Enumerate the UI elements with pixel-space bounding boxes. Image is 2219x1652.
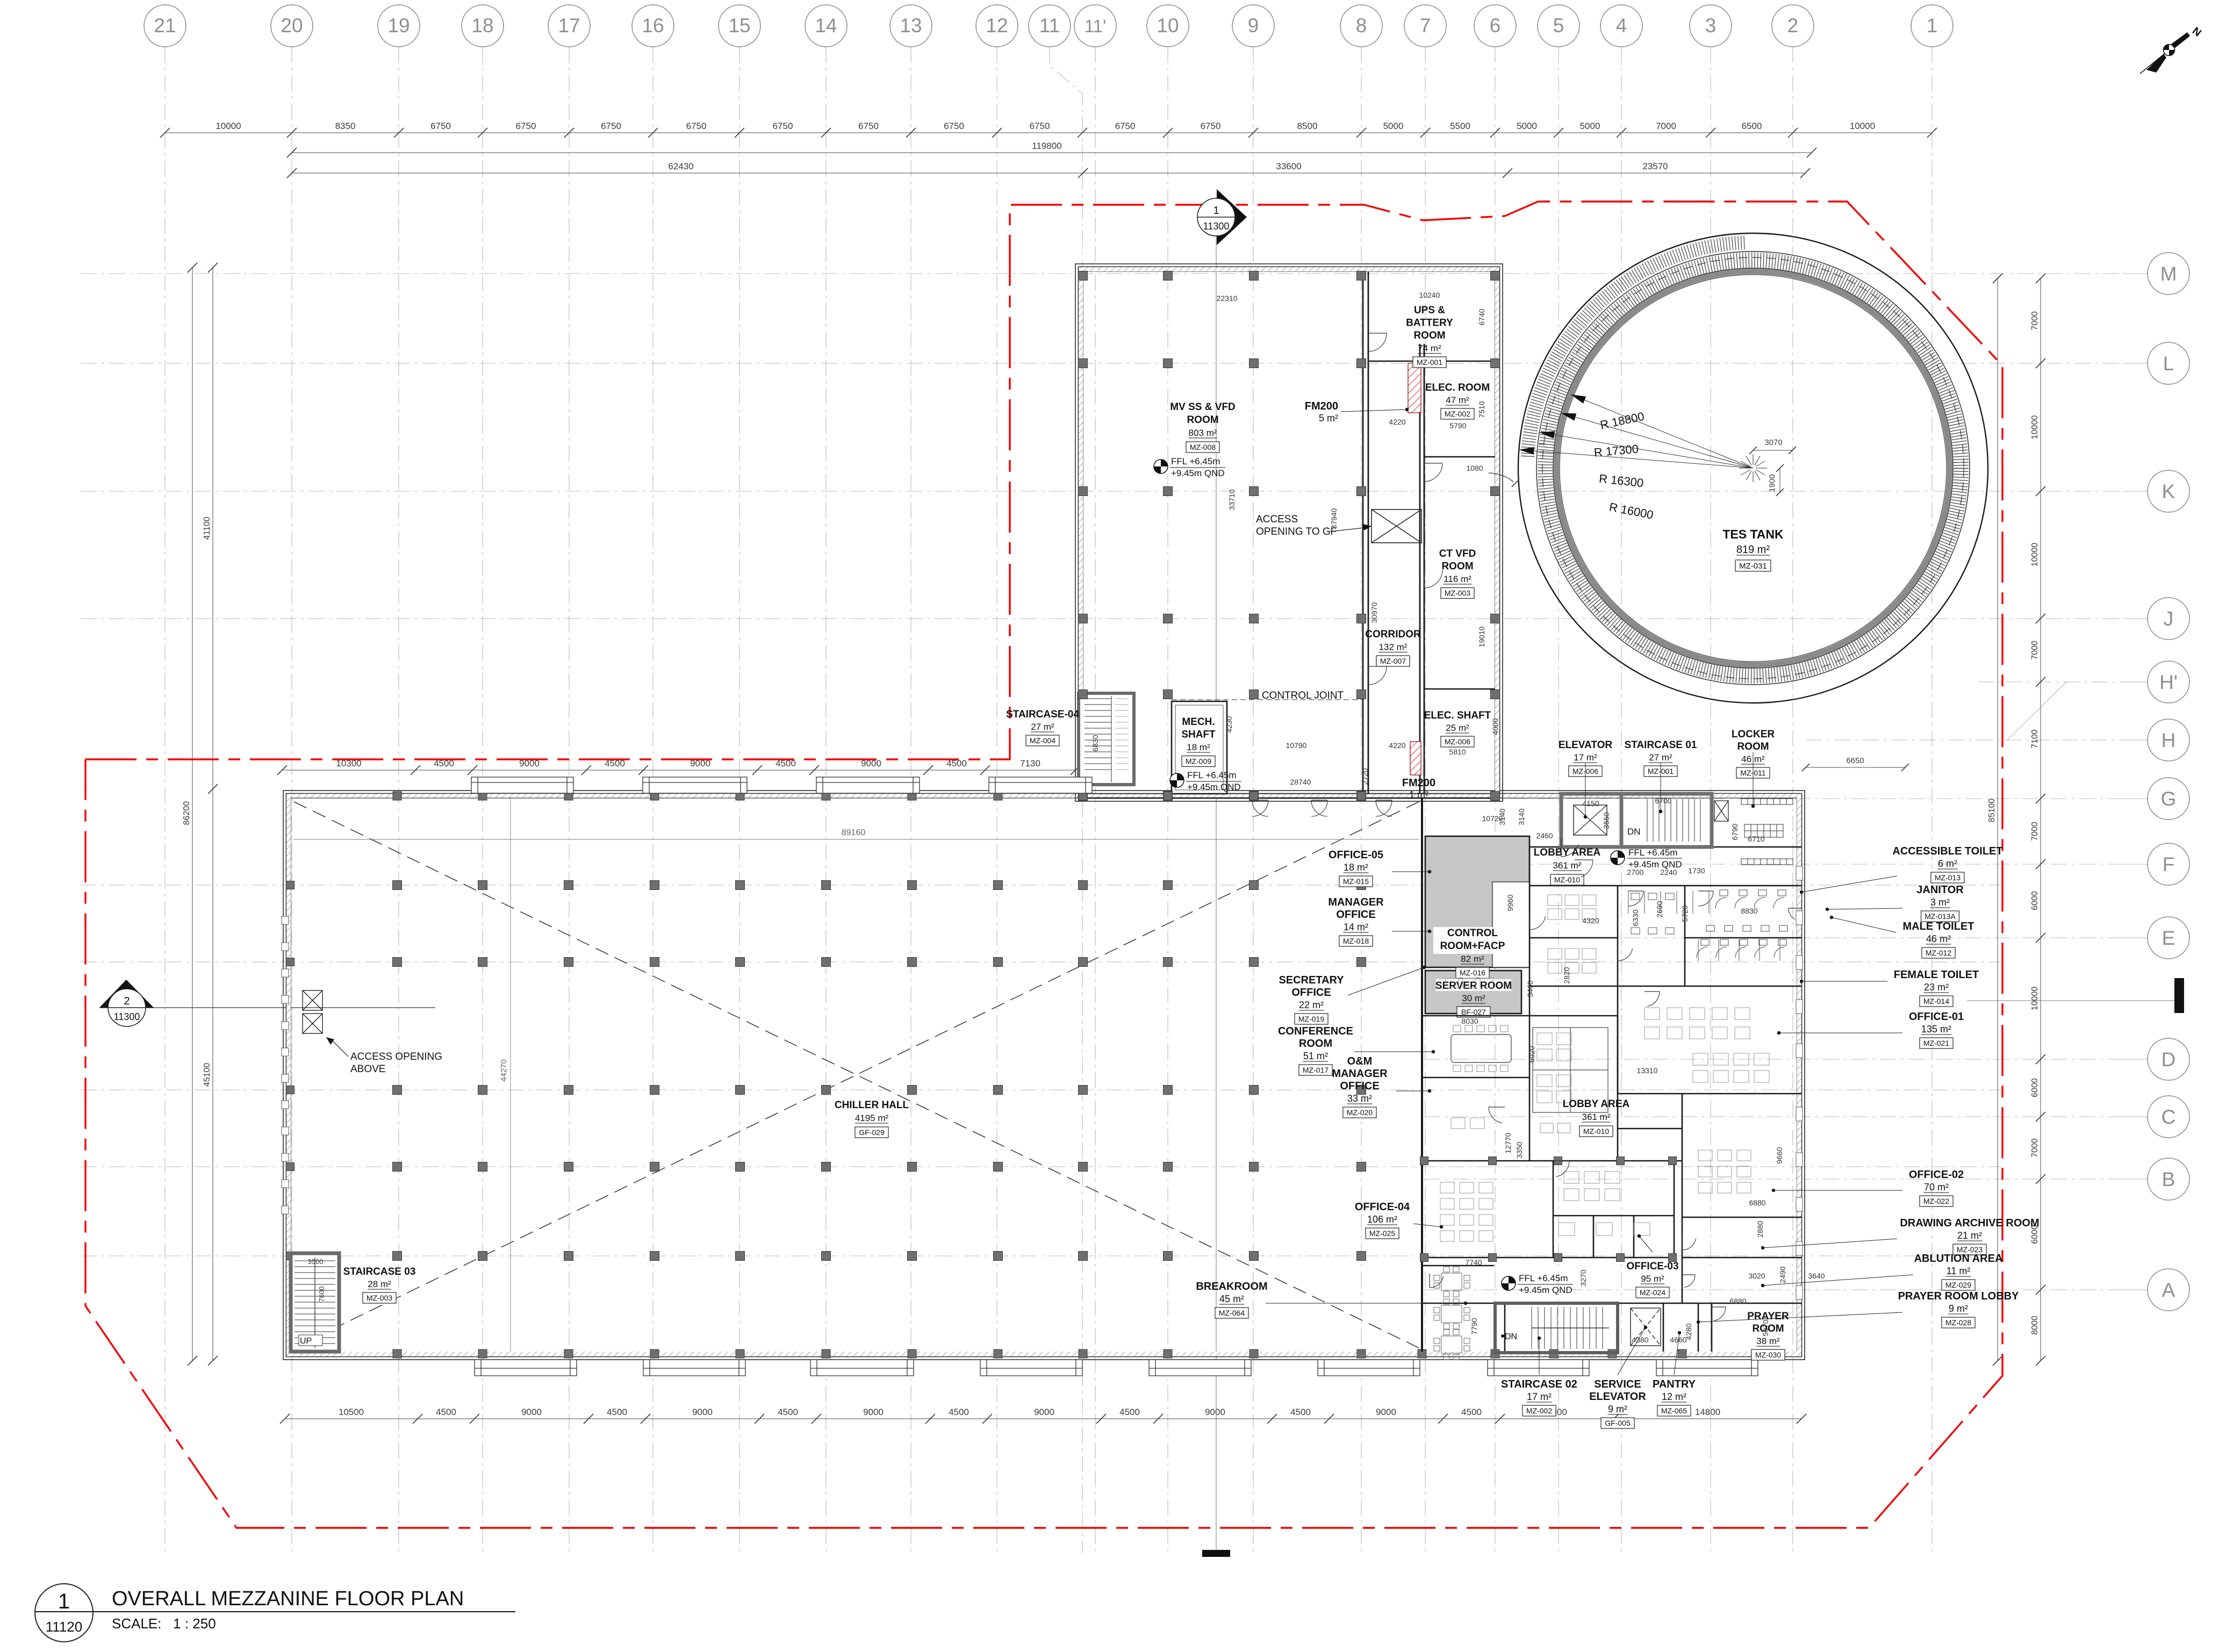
svg-text:FM200: FM200 bbox=[1305, 400, 1338, 412]
svg-text:OFFICE: OFFICE bbox=[1291, 987, 1331, 999]
svg-text:47 m²: 47 m² bbox=[1446, 395, 1469, 405]
svg-text:FFL +6.45m: FFL +6.45m bbox=[1171, 456, 1220, 466]
svg-text:16: 16 bbox=[642, 15, 664, 37]
svg-text:27 m²: 27 m² bbox=[1031, 722, 1054, 732]
svg-text:10790: 10790 bbox=[1286, 741, 1307, 750]
svg-text:9000: 9000 bbox=[692, 1407, 713, 1417]
svg-text:MZ-001: MZ-001 bbox=[1417, 358, 1442, 367]
svg-text:H: H bbox=[2161, 729, 2176, 751]
svg-text:J: J bbox=[2164, 608, 2174, 630]
svg-text:FEMALE TOILET: FEMALE TOILET bbox=[1894, 969, 1979, 981]
svg-text:6740: 6740 bbox=[1477, 308, 1486, 325]
svg-text:1 m²: 1 m² bbox=[1409, 789, 1428, 800]
svg-text:MZ-013A: MZ-013A bbox=[1924, 912, 1956, 921]
svg-text:10000: 10000 bbox=[2030, 415, 2040, 440]
svg-text:MZ-006: MZ-006 bbox=[1445, 737, 1470, 746]
svg-text:4150: 4150 bbox=[1582, 799, 1599, 808]
svg-text:MZ-008: MZ-008 bbox=[1190, 443, 1216, 451]
svg-text:70 m²: 70 m² bbox=[1924, 1182, 1949, 1193]
svg-text:25 m²: 25 m² bbox=[1446, 723, 1469, 733]
svg-text:10: 10 bbox=[1157, 15, 1179, 37]
svg-text:4220: 4220 bbox=[1389, 741, 1405, 750]
svg-text:5 m²: 5 m² bbox=[1319, 413, 1338, 423]
svg-text:9: 9 bbox=[1248, 15, 1259, 37]
svg-text:6020: 6020 bbox=[1527, 1046, 1536, 1062]
svg-text:MZ-004: MZ-004 bbox=[1030, 736, 1055, 745]
svg-text:FM200: FM200 bbox=[1402, 777, 1435, 789]
svg-text:19010: 19010 bbox=[1477, 626, 1486, 647]
svg-text:10240: 10240 bbox=[1419, 291, 1440, 299]
svg-text:6710: 6710 bbox=[1748, 835, 1764, 843]
svg-text:6750: 6750 bbox=[944, 121, 964, 131]
svg-text:5810: 5810 bbox=[1449, 748, 1466, 756]
svg-text:MZ-013: MZ-013 bbox=[1935, 873, 1961, 882]
svg-text:SCALE: 1 : 250: SCALE: 1 : 250 bbox=[112, 1615, 216, 1632]
svg-text:STAIRCASE 01: STAIRCASE 01 bbox=[1625, 739, 1697, 751]
svg-text:5070: 5070 bbox=[1761, 1319, 1770, 1336]
svg-text:LOCKER: LOCKER bbox=[1732, 729, 1775, 740]
svg-text:MZ-029: MZ-029 bbox=[1945, 1281, 1971, 1289]
svg-text:3 m²: 3 m² bbox=[1930, 897, 1950, 908]
svg-text:A: A bbox=[2162, 1279, 2175, 1301]
svg-text:MZ-024: MZ-024 bbox=[1640, 1288, 1665, 1297]
svg-text:45 m²: 45 m² bbox=[1219, 1294, 1244, 1304]
svg-text:BATTERY: BATTERY bbox=[1406, 318, 1453, 329]
svg-text:ACCESS OPENING: ACCESS OPENING bbox=[350, 1051, 442, 1062]
svg-text:6330: 6330 bbox=[1631, 909, 1640, 926]
svg-text:FFL +6.45m: FFL +6.45m bbox=[1628, 847, 1678, 858]
svg-text:9000: 9000 bbox=[1376, 1407, 1396, 1417]
svg-text:8030: 8030 bbox=[1461, 1017, 1478, 1025]
svg-text:D: D bbox=[2161, 1048, 2176, 1071]
svg-text:7000: 7000 bbox=[2030, 1138, 2040, 1158]
svg-text:9 m²: 9 m² bbox=[1608, 1404, 1627, 1414]
svg-text:2490: 2490 bbox=[1778, 1266, 1787, 1283]
svg-text:CONTROL: CONTROL bbox=[1447, 928, 1498, 939]
svg-text:6000: 6000 bbox=[2030, 891, 2040, 910]
svg-text:3140: 3140 bbox=[1498, 808, 1506, 825]
svg-text:4220: 4220 bbox=[1389, 418, 1405, 426]
svg-text:6750: 6750 bbox=[516, 121, 536, 131]
svg-text:6: 6 bbox=[1490, 15, 1501, 37]
svg-text:7: 7 bbox=[1420, 15, 1431, 37]
svg-text:SERVICE: SERVICE bbox=[1594, 1378, 1641, 1390]
svg-text:7000: 7000 bbox=[2030, 822, 2040, 841]
svg-text:10000: 10000 bbox=[1850, 121, 1875, 131]
svg-text:ROOM+FACP: ROOM+FACP bbox=[1440, 940, 1505, 952]
svg-text:ABOVE: ABOVE bbox=[350, 1064, 385, 1075]
svg-text:ACCESSIBLE TOILET: ACCESSIBLE TOILET bbox=[1892, 845, 2002, 857]
svg-text:2460: 2460 bbox=[1536, 831, 1553, 840]
svg-text:MECH.: MECH. bbox=[1182, 716, 1215, 728]
svg-text:1: 1 bbox=[1927, 15, 1938, 37]
svg-text:12 m²: 12 m² bbox=[1662, 1391, 1686, 1402]
svg-text:6650: 6650 bbox=[1846, 756, 1864, 765]
svg-text:MZ-019: MZ-019 bbox=[1298, 1015, 1324, 1023]
svg-text:DRAWING ARCHIVE ROOM: DRAWING ARCHIVE ROOM bbox=[1900, 1217, 2039, 1229]
svg-text:4500: 4500 bbox=[949, 1407, 969, 1417]
svg-text:MZ-021: MZ-021 bbox=[1923, 1039, 1949, 1047]
svg-text:MZ-025: MZ-025 bbox=[1369, 1229, 1395, 1238]
svg-text:ELEC. SHAFT: ELEC. SHAFT bbox=[1424, 710, 1491, 721]
svg-text:OFFICE-01: OFFICE-01 bbox=[1909, 1011, 1964, 1023]
svg-text:30970: 30970 bbox=[1370, 602, 1378, 623]
svg-text:ACCESS: ACCESS bbox=[1256, 514, 1298, 525]
svg-text:45100: 45100 bbox=[203, 1063, 212, 1087]
svg-text:4230: 4230 bbox=[1225, 716, 1233, 732]
svg-text:7740: 7740 bbox=[1465, 1258, 1482, 1267]
svg-text:17: 17 bbox=[558, 15, 580, 37]
svg-text:STAIRCASE 02: STAIRCASE 02 bbox=[1501, 1378, 1577, 1390]
svg-text:9 m²: 9 m² bbox=[1949, 1303, 1968, 1314]
svg-text:STAIRCASE-04: STAIRCASE-04 bbox=[1006, 709, 1079, 720]
svg-text:LOBBY AREA: LOBBY AREA bbox=[1534, 847, 1601, 858]
svg-text:6700: 6700 bbox=[1655, 796, 1671, 805]
svg-text:CONTROL JOINT: CONTROL JOINT bbox=[1262, 690, 1344, 701]
svg-text:MZ-015: MZ-015 bbox=[1343, 877, 1369, 886]
svg-text:MZ-030: MZ-030 bbox=[1755, 1351, 1781, 1359]
svg-text:ELEC. ROOM: ELEC. ROOM bbox=[1425, 382, 1490, 393]
svg-text:BREAKROOM: BREAKROOM bbox=[1196, 1281, 1267, 1292]
svg-text:K: K bbox=[2162, 480, 2175, 502]
svg-text:33600: 33600 bbox=[1276, 161, 1301, 171]
svg-text:7000: 7000 bbox=[1656, 121, 1676, 131]
svg-text:MZ-064: MZ-064 bbox=[1219, 1309, 1245, 1317]
svg-text:TES TANK: TES TANK bbox=[1722, 527, 1784, 541]
svg-text:MZ-007: MZ-007 bbox=[1380, 657, 1406, 665]
svg-text:21: 21 bbox=[154, 15, 176, 37]
svg-text:OFFICE: OFFICE bbox=[1336, 909, 1375, 921]
svg-text:MANAGER: MANAGER bbox=[1328, 896, 1384, 908]
svg-text:MZ-002: MZ-002 bbox=[1526, 1406, 1552, 1415]
svg-text:17 m²: 17 m² bbox=[1527, 1391, 1552, 1402]
svg-text:M: M bbox=[2160, 263, 2177, 285]
svg-text:7000: 7000 bbox=[2030, 311, 2040, 331]
svg-text:14800: 14800 bbox=[1695, 1407, 1720, 1417]
svg-text:7510: 7510 bbox=[1477, 401, 1486, 418]
svg-text:82 m²: 82 m² bbox=[1461, 954, 1484, 964]
svg-text:18 m²: 18 m² bbox=[1187, 742, 1210, 752]
svg-text:ROOM: ROOM bbox=[1187, 414, 1218, 426]
svg-text:GF-005: GF-005 bbox=[1605, 1419, 1631, 1427]
svg-text:OFFICE-02: OFFICE-02 bbox=[1909, 1169, 1964, 1181]
svg-text:6750: 6750 bbox=[1030, 121, 1050, 131]
svg-text:FFL +6.45m: FFL +6.45m bbox=[1519, 1273, 1568, 1283]
svg-text:1: 1 bbox=[58, 1590, 70, 1613]
svg-text:ELEVATOR: ELEVATOR bbox=[1589, 1391, 1646, 1403]
svg-text:8350: 8350 bbox=[335, 121, 356, 131]
svg-text:9660: 9660 bbox=[1775, 1147, 1784, 1163]
svg-text:MZ-018: MZ-018 bbox=[1343, 937, 1369, 945]
svg-text:116 m²: 116 m² bbox=[1444, 574, 1471, 584]
svg-text:4320: 4320 bbox=[1582, 916, 1599, 925]
svg-text:MZ-009: MZ-009 bbox=[1186, 757, 1211, 766]
svg-text:361 m²: 361 m² bbox=[1582, 1112, 1611, 1122]
svg-text:7000: 7000 bbox=[2030, 641, 2040, 660]
svg-text:1080: 1080 bbox=[1466, 464, 1483, 472]
svg-text:8500: 8500 bbox=[1297, 121, 1318, 131]
svg-text:DN: DN bbox=[1627, 827, 1641, 837]
svg-text:9000: 9000 bbox=[1205, 1407, 1225, 1417]
svg-text:4: 4 bbox=[1616, 15, 1627, 37]
svg-text:OFFICE-05: OFFICE-05 bbox=[1328, 849, 1383, 861]
svg-text:3: 3 bbox=[1705, 15, 1717, 37]
svg-text:MZ-017: MZ-017 bbox=[1303, 1066, 1328, 1074]
svg-text:1: 1 bbox=[1213, 205, 1219, 217]
svg-text:17 m²: 17 m² bbox=[1574, 752, 1597, 763]
svg-text:OFFICE-03: OFFICE-03 bbox=[1626, 1261, 1678, 1272]
svg-text:MZ-028: MZ-028 bbox=[1945, 1318, 1971, 1327]
svg-text:H': H' bbox=[2159, 671, 2178, 693]
svg-text:MZ-014: MZ-014 bbox=[1923, 997, 1949, 1005]
svg-text:6750: 6750 bbox=[430, 121, 451, 131]
svg-text:21 m²: 21 m² bbox=[1957, 1230, 1982, 1241]
svg-text:18 m²: 18 m² bbox=[1344, 862, 1368, 873]
svg-text:MZ-010: MZ-010 bbox=[1583, 1127, 1609, 1136]
svg-text:6880: 6880 bbox=[1749, 1198, 1765, 1207]
svg-text:12770: 12770 bbox=[1504, 1132, 1512, 1153]
svg-text:819 m²: 819 m² bbox=[1736, 544, 1770, 556]
svg-text:F: F bbox=[2163, 853, 2175, 875]
svg-text:30 m²: 30 m² bbox=[1462, 993, 1485, 1003]
svg-text:6000: 6000 bbox=[2030, 1078, 2040, 1097]
svg-text:51 m²: 51 m² bbox=[1303, 1051, 1328, 1061]
svg-text:3460: 3460 bbox=[1526, 980, 1534, 997]
svg-text:2820: 2820 bbox=[1562, 967, 1571, 983]
svg-text:CORRIDOR: CORRIDOR bbox=[1365, 629, 1421, 640]
svg-text:L: L bbox=[2163, 353, 2174, 375]
svg-text:361 m²: 361 m² bbox=[1553, 860, 1582, 871]
svg-text:3500: 3500 bbox=[308, 1258, 324, 1266]
svg-text:20: 20 bbox=[281, 15, 303, 37]
svg-text:6750: 6750 bbox=[601, 121, 621, 131]
svg-text:11300: 11300 bbox=[1203, 221, 1230, 232]
svg-text:ROOM: ROOM bbox=[1299, 1038, 1332, 1050]
svg-text:6750: 6750 bbox=[686, 121, 707, 131]
svg-text:OVERALL MEZZANINE FLOOR PLAN: OVERALL MEZZANINE FLOOR PLAN bbox=[112, 1588, 464, 1610]
svg-text:OFFICE-04: OFFICE-04 bbox=[1355, 1201, 1410, 1213]
svg-text:6750: 6750 bbox=[858, 121, 879, 131]
svg-text:11120: 11120 bbox=[46, 1619, 82, 1635]
svg-text:SERVER ROOM: SERVER ROOM bbox=[1435, 980, 1512, 992]
svg-text:8: 8 bbox=[1356, 15, 1367, 37]
svg-text:DN: DN bbox=[1505, 1332, 1517, 1341]
svg-text:2720: 2720 bbox=[1361, 768, 1369, 785]
svg-text:9000: 9000 bbox=[1034, 1407, 1054, 1417]
svg-text:PRAYER ROOM LOBBY: PRAYER ROOM LOBBY bbox=[1898, 1290, 2020, 1302]
svg-text:22 m²: 22 m² bbox=[1299, 1000, 1324, 1010]
svg-text:ROOM: ROOM bbox=[1413, 330, 1445, 341]
svg-text:14 m²: 14 m² bbox=[1344, 922, 1368, 932]
svg-text:13310: 13310 bbox=[1637, 1066, 1658, 1075]
svg-text:44270: 44270 bbox=[499, 1059, 508, 1082]
svg-text:27 m²: 27 m² bbox=[1649, 752, 1672, 763]
svg-text:4500: 4500 bbox=[436, 1407, 456, 1417]
svg-text:7100: 7100 bbox=[2030, 729, 2040, 749]
svg-text:MZ-003: MZ-003 bbox=[367, 1294, 392, 1302]
svg-text:6 m²: 6 m² bbox=[1938, 858, 1957, 869]
svg-text:10000: 10000 bbox=[2030, 987, 2040, 1011]
svg-text:8000: 8000 bbox=[2030, 1316, 2040, 1335]
svg-text:18: 18 bbox=[471, 15, 493, 37]
svg-text:85100: 85100 bbox=[1987, 799, 1997, 823]
svg-text:4500: 4500 bbox=[607, 1407, 627, 1417]
svg-text:G: G bbox=[2161, 788, 2177, 810]
svg-text:9000: 9000 bbox=[863, 1407, 884, 1417]
svg-text:37940: 37940 bbox=[1330, 508, 1338, 529]
svg-text:O&M: O&M bbox=[1347, 1055, 1373, 1067]
svg-text:5720: 5720 bbox=[1681, 905, 1689, 922]
svg-text:B: B bbox=[2162, 1168, 2175, 1190]
svg-text:4000: 4000 bbox=[1491, 718, 1499, 735]
svg-text:4500: 4500 bbox=[1119, 1407, 1140, 1417]
svg-text:E: E bbox=[2162, 927, 2175, 949]
svg-text:ROOM: ROOM bbox=[1737, 741, 1769, 752]
svg-text:8830: 8830 bbox=[1741, 907, 1757, 915]
svg-text:STAIRCASE 03: STAIRCASE 03 bbox=[343, 1266, 416, 1277]
svg-text:119800: 119800 bbox=[1032, 141, 1061, 151]
svg-text:3550: 3550 bbox=[1602, 812, 1611, 829]
svg-text:OPENING TO GF: OPENING TO GF bbox=[1256, 526, 1337, 537]
svg-text:86200: 86200 bbox=[182, 801, 191, 825]
svg-text:6830: 6830 bbox=[1091, 735, 1100, 751]
svg-text:C: C bbox=[2161, 1106, 2176, 1128]
svg-text:11': 11' bbox=[1085, 16, 1107, 36]
svg-text:6790: 6790 bbox=[1730, 823, 1739, 840]
svg-text:BF-027: BF-027 bbox=[1461, 1008, 1486, 1016]
svg-text:MZ-003: MZ-003 bbox=[1445, 589, 1470, 598]
svg-text:2: 2 bbox=[124, 995, 130, 1007]
svg-text:MANAGER: MANAGER bbox=[1332, 1068, 1388, 1080]
svg-text:6750: 6750 bbox=[773, 121, 793, 131]
svg-text:6750: 6750 bbox=[1115, 121, 1136, 131]
svg-text:2: 2 bbox=[1787, 15, 1799, 37]
svg-text:MV SS & VFD: MV SS & VFD bbox=[1170, 401, 1235, 413]
svg-text:10500: 10500 bbox=[339, 1407, 364, 1417]
svg-text:3350: 3350 bbox=[1515, 1141, 1524, 1158]
svg-text:4500: 4500 bbox=[1290, 1407, 1311, 1417]
svg-text:MZ-002: MZ-002 bbox=[1445, 410, 1470, 418]
svg-text:MZ-022: MZ-022 bbox=[1923, 1197, 1949, 1205]
svg-text:MZ-065: MZ-065 bbox=[1661, 1406, 1687, 1415]
svg-text:3140: 3140 bbox=[1517, 808, 1526, 825]
svg-text:2880: 2880 bbox=[1756, 1220, 1764, 1237]
svg-text:106 m²: 106 m² bbox=[1367, 1214, 1397, 1225]
svg-text:5000: 5000 bbox=[1383, 121, 1404, 131]
svg-text:1900: 1900 bbox=[1768, 474, 1777, 492]
svg-text:CHILLER HALL: CHILLER HALL bbox=[835, 1100, 909, 1111]
svg-text:4195 m²: 4195 m² bbox=[855, 1113, 889, 1123]
svg-text:62430: 62430 bbox=[668, 161, 693, 171]
svg-text:4500: 4500 bbox=[778, 1407, 798, 1417]
svg-text:95 m²: 95 m² bbox=[1641, 1274, 1664, 1284]
svg-text:28740: 28740 bbox=[1290, 778, 1311, 786]
svg-text:7600: 7600 bbox=[318, 1287, 326, 1302]
svg-text:5: 5 bbox=[1553, 15, 1564, 37]
svg-text:803 m²: 803 m² bbox=[1189, 428, 1217, 438]
svg-text:13: 13 bbox=[900, 15, 922, 37]
svg-text:11 m²: 11 m² bbox=[1947, 1266, 1971, 1276]
svg-text:FFL +6.45m: FFL +6.45m bbox=[1187, 770, 1237, 780]
svg-text:10000: 10000 bbox=[2030, 543, 2040, 567]
svg-text:33710: 33710 bbox=[1227, 489, 1236, 510]
svg-text:38 m²: 38 m² bbox=[1756, 1336, 1780, 1346]
svg-text:14: 14 bbox=[815, 15, 837, 37]
svg-text:28 m²: 28 m² bbox=[368, 1279, 391, 1289]
svg-text:11300: 11300 bbox=[114, 1011, 140, 1022]
svg-text:7790: 7790 bbox=[1470, 1318, 1478, 1334]
svg-text:3020: 3020 bbox=[1748, 1272, 1765, 1280]
svg-text:135 m²: 135 m² bbox=[1921, 1024, 1951, 1035]
svg-text:MZ-016: MZ-016 bbox=[1460, 968, 1485, 977]
svg-text:4280: 4280 bbox=[1684, 1323, 1693, 1340]
svg-text:+9.45m QND: +9.45m QND bbox=[1187, 782, 1241, 792]
svg-text:7130: 7130 bbox=[1020, 758, 1040, 768]
svg-text:3640: 3640 bbox=[1808, 1272, 1825, 1280]
svg-text:UPS &: UPS & bbox=[1414, 305, 1445, 316]
svg-text:89160: 89160 bbox=[842, 828, 866, 837]
svg-text:ROOM: ROOM bbox=[1441, 561, 1473, 572]
svg-text:MZ-020: MZ-020 bbox=[1347, 1108, 1373, 1117]
svg-text:9960: 9960 bbox=[1506, 894, 1514, 911]
svg-text:JANITOR: JANITOR bbox=[1916, 884, 1964, 896]
svg-text:MZ-012: MZ-012 bbox=[1926, 949, 1951, 957]
svg-text:2690: 2690 bbox=[1655, 901, 1664, 917]
svg-text:3270: 3270 bbox=[1579, 1269, 1588, 1286]
svg-text:UP: UP bbox=[300, 1337, 312, 1346]
svg-text:MZ-031: MZ-031 bbox=[1739, 562, 1767, 571]
svg-text:5500: 5500 bbox=[1450, 121, 1470, 131]
svg-text:LOBBY AREA: LOBBY AREA bbox=[1563, 1098, 1630, 1110]
svg-text:6750: 6750 bbox=[1201, 121, 1221, 131]
svg-text:9000: 9000 bbox=[521, 1407, 542, 1417]
svg-text:41100: 41100 bbox=[203, 516, 212, 540]
svg-text:46 m²: 46 m² bbox=[1926, 933, 1951, 944]
svg-text:5000: 5000 bbox=[1517, 121, 1537, 131]
svg-text:23 m²: 23 m² bbox=[1924, 982, 1949, 993]
svg-text:5790: 5790 bbox=[1449, 421, 1466, 430]
svg-text:12: 12 bbox=[986, 15, 1008, 37]
svg-text:2700: 2700 bbox=[1627, 868, 1643, 877]
svg-text:10000: 10000 bbox=[216, 121, 241, 131]
svg-text:OFFICE: OFFICE bbox=[1340, 1080, 1379, 1092]
svg-text:ABLUTION AREA: ABLUTION AREA bbox=[1914, 1253, 2003, 1265]
svg-text:GF-029: GF-029 bbox=[859, 1128, 885, 1137]
svg-text:4500: 4500 bbox=[1461, 1407, 1482, 1417]
svg-text:6500: 6500 bbox=[1742, 121, 1762, 131]
svg-text:11: 11 bbox=[1039, 15, 1060, 37]
svg-text:23570: 23570 bbox=[1642, 161, 1668, 171]
svg-text:MZ-010: MZ-010 bbox=[1554, 875, 1580, 884]
svg-text:4380: 4380 bbox=[1632, 1335, 1648, 1344]
svg-text:1730: 1730 bbox=[1688, 866, 1705, 875]
svg-text:SHAFT: SHAFT bbox=[1181, 729, 1216, 741]
svg-text:6880: 6880 bbox=[1729, 1297, 1746, 1305]
svg-text:+9.45m QND: +9.45m QND bbox=[1171, 468, 1225, 478]
svg-text:5000: 5000 bbox=[1580, 121, 1600, 131]
svg-text:3070: 3070 bbox=[1764, 438, 1782, 447]
svg-text:74 m²: 74 m² bbox=[1418, 343, 1441, 354]
svg-text:ELEVATOR: ELEVATOR bbox=[1559, 739, 1613, 751]
svg-text:SECRETARY: SECRETARY bbox=[1279, 974, 1344, 986]
svg-text:MALE TOILET: MALE TOILET bbox=[1903, 921, 1974, 932]
svg-text:22310: 22310 bbox=[1217, 294, 1238, 303]
svg-text:+9.45m QND: +9.45m QND bbox=[1519, 1285, 1572, 1295]
svg-text:15: 15 bbox=[728, 15, 750, 37]
svg-text:PANTRY: PANTRY bbox=[1653, 1378, 1696, 1390]
svg-text:CONFERENCE: CONFERENCE bbox=[1278, 1025, 1353, 1037]
svg-text:2240: 2240 bbox=[1660, 868, 1677, 877]
